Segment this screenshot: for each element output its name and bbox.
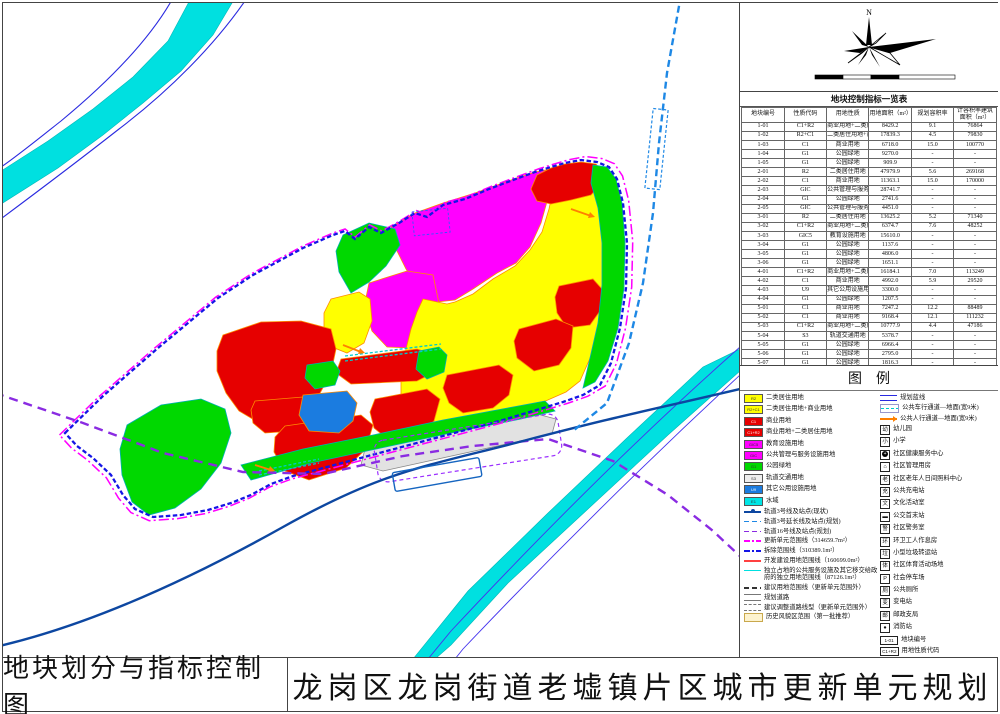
- legend-facility-icon: 厕: [880, 586, 890, 596]
- legend-item: 充公共充电站: [880, 487, 996, 497]
- legend-item-label: 建议用地范围线（更新单元范围外）: [764, 584, 880, 591]
- legend-facility-icon: ⌂: [880, 462, 890, 472]
- table-cell: 1-03: [742, 140, 784, 149]
- table-cell: 2-04: [742, 195, 784, 204]
- legend-swatch-line: [744, 557, 761, 564]
- table-row: 5-02C1商业用地9168.412.1111232: [742, 313, 996, 322]
- legend-item-label: 轨道交通用地: [766, 474, 880, 481]
- table-row: 3-03GIC5教育设施用地15610.0--: [742, 231, 996, 240]
- legend-item-label: 邮政支局: [893, 611, 996, 618]
- table-row: 1-05G1公园绿地909.9--: [742, 159, 996, 168]
- table-cell: -: [911, 150, 953, 159]
- table-cell: 商业用地+二类居住用地: [827, 268, 869, 277]
- table-cell: 3-01: [742, 213, 784, 222]
- table-header: 用地性质: [827, 108, 869, 123]
- legend-facility-icon: 环: [880, 537, 890, 547]
- table-cell: 4.4: [911, 322, 953, 331]
- table-cell: C1+R2: [784, 222, 826, 231]
- table-cell: C1+R2: [784, 322, 826, 331]
- legend-item-label: 二类居住用地+商业用地: [766, 405, 880, 412]
- map-area: [3, 3, 739, 657]
- legend-facility-icon: P: [880, 574, 890, 584]
- legend-swatch-fill: R2+C1: [744, 405, 763, 414]
- legend-facility-icon: 垃: [880, 549, 890, 559]
- table-cell: 2795.0: [869, 350, 911, 359]
- legend-item-label: 幼儿园: [893, 425, 996, 432]
- legend-swatch-line: [744, 528, 761, 535]
- table-cell: 12.2: [911, 304, 953, 313]
- table-row: 5-05G1公园绿地6966.4--: [742, 341, 996, 350]
- table-cell: 13625.2: [869, 213, 911, 222]
- table-cell: 商业用地: [827, 277, 869, 286]
- legend-item: G1公园绿地: [744, 462, 880, 471]
- legend-item: 垃小型垃圾转运站: [880, 549, 996, 559]
- table-row: 5-04S3轨道交通用地5378.7--: [742, 331, 996, 340]
- table-cell: 2-05: [742, 204, 784, 213]
- table-cell: 88489: [954, 304, 996, 313]
- legend-item-label: 社会停车场: [893, 574, 996, 581]
- legend-item-label: 社区健康服务中心: [893, 450, 996, 457]
- table-cell: G1: [784, 159, 826, 168]
- legend-item: 公共人行通道—地面(宽9米): [880, 415, 996, 422]
- legend-swatch-line: [744, 508, 761, 515]
- table-cell: 9168.4: [869, 313, 911, 322]
- legend-item: 历史风貌区范围（第一批推荐）: [744, 613, 880, 622]
- table-cell: 公园绿地: [827, 241, 869, 250]
- legend-item: 公共车行通道—地面(宽9米): [880, 404, 996, 413]
- table-cell: 5.9: [911, 277, 953, 286]
- table-cell: -: [954, 150, 996, 159]
- legend-item: 警社区警务室: [880, 524, 996, 534]
- table-cell: -: [954, 250, 996, 259]
- table-cell: 9270.0: [869, 150, 911, 159]
- table-cell: 7.6: [911, 222, 953, 231]
- legend-item: 1-01地块编号: [880, 636, 996, 645]
- table-row: 2-04G1公园绿地2741.6--: [742, 195, 996, 204]
- legend-item: 开发建设用地范围线（160699.0m²）: [744, 557, 880, 564]
- table-row: 2-02C1商业用地11363.115.0170000: [742, 177, 996, 186]
- table-row: 2-03GIC公共管理与服务设施用地28741.7--: [742, 186, 996, 195]
- table-cell: C1: [784, 177, 826, 186]
- legend-item-label: 地块编号: [901, 636, 996, 643]
- legend-item: P社会停车场: [880, 574, 996, 584]
- table-cell: 3-03: [742, 231, 784, 240]
- scale-bar-segment: [843, 75, 871, 79]
- legend-item-label: 社区管理用房: [893, 462, 996, 469]
- legend-swatch-vehicle-passage: [880, 404, 899, 413]
- legend-item: E1水域: [744, 497, 880, 506]
- indicator-table: 地块编号性质代码用地性质用地面积（m²）规划容积率计容积率建筑面积（m²） 1-…: [741, 107, 996, 366]
- legend-facility-icon: ▬: [880, 512, 890, 522]
- legend-item: +社区健康服务中心: [880, 450, 996, 460]
- table-cell: G1: [784, 295, 826, 304]
- legend-item-label: 公共车行通道—地面(宽9米): [902, 404, 996, 411]
- sheet-frame: N 地块控制指标一览表 地块编号性质代码用地性质用地面积（m²）规划容: [2, 2, 998, 712]
- table-cell: S3: [784, 331, 826, 340]
- table-cell: 100770: [954, 140, 996, 149]
- table-cell: -: [911, 186, 953, 195]
- table-cell: R2: [784, 213, 826, 222]
- table-cell: G1: [784, 350, 826, 359]
- legend-item-label: 开发建设用地范围线（160699.0m²）: [764, 557, 880, 564]
- legend-item-label: 公共充电站: [893, 487, 996, 494]
- legend-item: GIC5教育设施用地: [744, 440, 880, 449]
- table-cell: 3300.0: [869, 286, 911, 295]
- legend-item-label: 轨道3号线及站点(现状): [764, 508, 880, 515]
- legend-item: C1+R2商业用地+二类居住用地: [744, 428, 880, 437]
- legend-item: 变变电站: [880, 598, 996, 608]
- legend-item: ▬公交首末站: [880, 512, 996, 522]
- table-header: 性质代码: [784, 108, 826, 123]
- table-cell: 5-01: [742, 304, 784, 313]
- legend-item-label: 商业用地: [766, 417, 880, 424]
- table-row: 2-05GIC公共管理与服务设施用地4451.0--: [742, 204, 996, 213]
- table-cell: G1: [784, 250, 826, 259]
- compass-box: N: [740, 3, 998, 92]
- table-cell: 2741.6: [869, 195, 911, 204]
- legend-box: 图例 R2二类居住用地R2+C1二类居住用地+商业用地C1商业用地C1+R2商业…: [740, 365, 998, 657]
- table-cell: G1: [784, 195, 826, 204]
- table-row: 1-03C1商业用地6718.015.0100770: [742, 140, 996, 149]
- legend-code-box: C1+R2: [880, 647, 898, 656]
- table-cell: 1-05: [742, 159, 784, 168]
- legend-item-label: 独立占地的公共服务设施及其它移交给政府的独立用地范围线（87126.1m²）: [764, 567, 880, 582]
- north-label: N: [866, 8, 872, 17]
- legend-item-label: 用地性质代码: [902, 647, 996, 654]
- legend-item-label: 二类居住用地: [766, 394, 880, 401]
- table-row: 1-01C1+R2商业用地+二类居住用地8429.29.176864: [742, 122, 996, 131]
- table-row: 1-02R2+C1二类居住用地+商业用地17839.34.579830: [742, 131, 996, 140]
- table-cell: 6374.7: [869, 222, 911, 231]
- table-header: 用地面积（m²）: [869, 108, 911, 123]
- table-cell: 170000: [954, 177, 996, 186]
- legend-item: 邮邮政支局: [880, 611, 996, 621]
- table-cell: -: [911, 331, 953, 340]
- table-cell: 76864: [954, 122, 996, 131]
- table-cell: 5.6: [911, 168, 953, 177]
- legend-item: 体社区体育活动场地: [880, 561, 996, 571]
- plan-map: [3, 3, 739, 657]
- plan-sheet: N 地块控制指标一览表 地块编号性质代码用地性质用地面积（m²）规划容: [0, 0, 1000, 714]
- legend-item-label: 更新单元范围线（314659.7m²）: [764, 537, 880, 544]
- legend-swatch-fill: S3: [744, 474, 763, 483]
- table-cell: -: [954, 231, 996, 240]
- legend-facility-icon: ●: [880, 623, 890, 633]
- table-cell: 47979.9: [869, 168, 911, 177]
- table-cell: 公共管理与服务设施用地: [827, 186, 869, 195]
- table-cell: -: [954, 295, 996, 304]
- table-cell: -: [911, 241, 953, 250]
- table-cell: -: [911, 295, 953, 304]
- table-cell: 3-02: [742, 222, 784, 231]
- table-row: 3-01R2二类居住用地13625.25.271340: [742, 213, 996, 222]
- legend-left-column: R2二类居住用地R2+C1二类居住用地+商业用地C1商业用地C1+R2商业用地+…: [744, 394, 880, 657]
- legend-swatch-fill: C1: [744, 417, 763, 426]
- table-header: 规划容积率: [911, 108, 953, 123]
- table-cell: 269168: [954, 168, 996, 177]
- legend-item-label: 历史风貌区范围（第一批推荐）: [766, 613, 880, 620]
- legend-item-label: 消防站: [893, 623, 996, 630]
- table-cell: C1: [784, 140, 826, 149]
- table-cell: 5-05: [742, 341, 784, 350]
- legend-facility-icon: 变: [880, 598, 890, 608]
- legend-facility-icon: 充: [880, 487, 890, 497]
- legend-item: 规划蓝线: [880, 394, 996, 401]
- table-cell: 28741.7: [869, 186, 911, 195]
- legend-item: GIC公共管理与服务设施用地: [744, 451, 880, 460]
- scale-bar-segment: [871, 75, 899, 79]
- legend-swatch-line: [744, 584, 761, 591]
- legend-right-column: 规划蓝线公共车行通道—地面(宽9米)公共人行通道—地面(宽9米)幼幼儿园小小学+…: [880, 394, 996, 657]
- table-cell: R2+C1: [784, 131, 826, 140]
- table-cell: 4451.0: [869, 204, 911, 213]
- legend-item: ⌂社区管理用房: [880, 462, 996, 472]
- table-cell: U9: [784, 286, 826, 295]
- table-row: 3-02C1+R2商业用地+二类居住用地6374.77.648252: [742, 222, 996, 231]
- table-cell: 4992.0: [869, 277, 911, 286]
- table-row: 3-04G1公园绿地1137.6--: [742, 241, 996, 250]
- table-cell: 6966.4: [869, 341, 911, 350]
- table-row: 2-01R2二类居住用地47979.95.6269168: [742, 168, 996, 177]
- table-cell: 5-04: [742, 331, 784, 340]
- table-cell: -: [911, 259, 953, 268]
- north-arrow-icon: [844, 17, 936, 67]
- legend-item: R2+C1二类居住用地+商业用地: [744, 405, 880, 414]
- table-cell: 1-01: [742, 122, 784, 131]
- table-row: 4-02C1商业用地4992.05.929520: [742, 277, 996, 286]
- legend-item-label: 建议调整道路线型（更新单元范围外）: [764, 604, 880, 611]
- legend-item-label: 商业用地+二类居住用地: [766, 428, 880, 435]
- table-cell: -: [954, 241, 996, 250]
- legend-swatch-fill: GIC5: [744, 440, 763, 449]
- legend-item: C1+R2用地性质代码: [880, 647, 996, 656]
- table-cell: 6718.0: [869, 140, 911, 149]
- table-cell: C1: [784, 313, 826, 322]
- legend-item-label: 轨道3号延长线及站点(规划): [764, 518, 880, 525]
- table-cell: 71340: [954, 213, 996, 222]
- table-cell: -: [954, 195, 996, 204]
- table-cell: 商业用地: [827, 177, 869, 186]
- table-cell: 轨道交通用地: [827, 331, 869, 340]
- table-cell: -: [911, 250, 953, 259]
- table-cell: G1: [784, 259, 826, 268]
- legend-item-label: 公共厕所: [893, 586, 996, 593]
- table-cell: 48252: [954, 222, 996, 231]
- legend-swatch-fill: G1: [744, 462, 763, 471]
- table-cell: 1-02: [742, 131, 784, 140]
- table-cell: -: [954, 331, 996, 340]
- table-cell: 29520: [954, 277, 996, 286]
- table-cell: 5-06: [742, 350, 784, 359]
- table-cell: 公园绿地: [827, 341, 869, 350]
- table-cell: 4-02: [742, 277, 784, 286]
- legend-item: R2二类居住用地: [744, 394, 880, 403]
- table-cell: C1: [784, 277, 826, 286]
- table-cell: 商业用地: [827, 140, 869, 149]
- table-cell: -: [954, 204, 996, 213]
- legend-item: 轨道16号线及站点(规划): [744, 528, 880, 535]
- table-cell: 2-01: [742, 168, 784, 177]
- legend-item: 环环卫工人作息房: [880, 537, 996, 547]
- legend-item: 厕公共厕所: [880, 586, 996, 596]
- table-cell: -: [911, 350, 953, 359]
- legend-item: C1商业用地: [744, 417, 880, 426]
- table-cell: 5-03: [742, 322, 784, 331]
- legend-swatch-line: [744, 567, 761, 574]
- table-cell: 公园绿地: [827, 259, 869, 268]
- table-cell: 3-06: [742, 259, 784, 268]
- legend-swatch-fill: C1+R2: [744, 428, 763, 437]
- legend-item-label: 公共人行通道—地面(宽9米): [900, 415, 996, 422]
- legend-item-label: 教育设施用地: [766, 440, 880, 447]
- table-cell: 15.0: [911, 140, 953, 149]
- table-cell: -: [911, 159, 953, 168]
- indicator-table-box: 地块控制指标一览表 地块编号性质代码用地性质用地面积（m²）规划容积率计容积率建…: [740, 91, 998, 366]
- legend-swatch-blueline: [880, 394, 897, 401]
- table-cell: 1651.1: [869, 259, 911, 268]
- table-cell: 公园绿地: [827, 159, 869, 168]
- table-cell: 113249: [954, 268, 996, 277]
- table-cell: 4-01: [742, 268, 784, 277]
- table-cell: 二类居住用地: [827, 213, 869, 222]
- table-cell: 17839.3: [869, 131, 911, 140]
- legend-item: 幼幼儿园: [880, 425, 996, 435]
- legend-swatch-fill: GIC: [744, 451, 763, 460]
- legend-item: 独立占地的公共服务设施及其它移交给政府的独立用地范围线（87126.1m²）: [744, 567, 880, 582]
- table-cell: 9.1: [911, 122, 953, 131]
- table-cell: 8429.2: [869, 122, 911, 131]
- table-cell: 2-02: [742, 177, 784, 186]
- table-cell: -: [954, 259, 996, 268]
- legend-swatch-fill: R2: [744, 394, 763, 403]
- legend-swatch-line: [744, 547, 761, 554]
- table-cell: 公园绿地: [827, 295, 869, 304]
- table-cell: -: [954, 186, 996, 195]
- scale-bar-segment: [815, 75, 843, 79]
- table-cell: 1-04: [742, 150, 784, 159]
- title-block: 地块划分与指标控制图 龙岗区龙岗街道老墟镇片区城市更新单元规划: [3, 657, 997, 712]
- table-cell: 教育设施用地: [827, 231, 869, 240]
- table-cell: 47186: [954, 322, 996, 331]
- table-row: 4-01C1+R2商业用地+二类居住用地16184.17.0113249: [742, 268, 996, 277]
- table-cell: 4-03: [742, 286, 784, 295]
- table-cell: 7247.2: [869, 304, 911, 313]
- legend-item-label: 水域: [766, 497, 880, 504]
- legend-health-center-icon: +: [880, 450, 890, 460]
- table-cell: C1+R2: [784, 122, 826, 131]
- table-cell: 二类居住用地: [827, 168, 869, 177]
- table-cell: -: [911, 341, 953, 350]
- table-cell: 二类居住用地+商业用地: [827, 131, 869, 140]
- table-cell: 公园绿地: [827, 250, 869, 259]
- legend-item: 老社区老年人日间照料中心: [880, 475, 996, 485]
- legend-item-label: 拆除范围线（310389.1m²）: [764, 547, 880, 554]
- legend-swatch-fill: U9: [744, 485, 763, 494]
- table-cell: 1207.5: [869, 295, 911, 304]
- legend-swatch-line: [744, 537, 761, 544]
- table-cell: 4806.0: [869, 250, 911, 259]
- table-cell: 16184.1: [869, 268, 911, 277]
- table-cell: 公园绿地: [827, 150, 869, 159]
- table-cell: 15610.0: [869, 231, 911, 240]
- compass-scalebar: N: [740, 3, 998, 91]
- table-cell: GIC: [784, 204, 826, 213]
- right-panel: N 地块控制指标一览表 地块编号性质代码用地性质用地面积（m²）规划容: [739, 3, 998, 657]
- table-cell: G1: [784, 241, 826, 250]
- legend-item-label: 小型垃圾转运站: [893, 549, 996, 556]
- table-cell: 公园绿地: [827, 350, 869, 359]
- table-cell: 1137.6: [869, 241, 911, 250]
- legend-swatch-fill: E1: [744, 497, 763, 506]
- table-cell: -: [954, 159, 996, 168]
- legend-facility-icon: 文: [880, 499, 890, 509]
- legend-item: U9其它公用设施用地: [744, 485, 880, 494]
- table-row: 5-06G1公园绿地2795.0--: [742, 350, 996, 359]
- table-cell: 公园绿地: [827, 195, 869, 204]
- table-cell: 其它公用设施用地: [827, 286, 869, 295]
- legend-item-label: 公交首末站: [893, 512, 996, 519]
- legend-item-label: 小学: [893, 437, 996, 444]
- legend-facility-icon: 体: [880, 561, 890, 571]
- legend-item-label: 社区警务室: [893, 524, 996, 531]
- table-cell: 3-05: [742, 250, 784, 259]
- table-cell: 4.5: [911, 131, 953, 140]
- table-title: 地块控制指标一览表: [740, 91, 998, 107]
- legend-historic-area-swatch: [744, 613, 763, 622]
- table-cell: 11363.1: [869, 177, 911, 186]
- legend-item: 建议用地范围线（更新单元范围外）: [744, 584, 880, 591]
- table-row: 4-03U9其它公用设施用地3300.0--: [742, 286, 996, 295]
- legend-code-box: 1-01: [880, 636, 898, 645]
- table-cell: 15.0: [911, 177, 953, 186]
- table-cell: 商业用地+二类居住用地: [827, 322, 869, 331]
- table-row: 4-04G1公园绿地1207.5--: [742, 295, 996, 304]
- table-cell: 2-03: [742, 186, 784, 195]
- table-cell: 5378.7: [869, 331, 911, 340]
- table-cell: -: [911, 286, 953, 295]
- legend-item-label: 公共管理与服务设施用地: [766, 451, 880, 458]
- drawing-name: 地块划分与指标控制图: [3, 658, 288, 712]
- table-row: 5-01C1商业用地7247.212.288489: [742, 304, 996, 313]
- legend-facility-icon: 小: [880, 437, 890, 447]
- legend-road-symbol: [744, 604, 761, 611]
- legend-item: 轨道3号线及站点(现状): [744, 508, 880, 515]
- legend-facility-icon: 警: [880, 524, 890, 534]
- table-cell: 5.2: [911, 213, 953, 222]
- table-cell: C1: [784, 304, 826, 313]
- table-cell: C1+R2: [784, 268, 826, 277]
- table-header: 地块编号: [742, 108, 784, 123]
- legend-item: 建议调整道路线型（更新单元范围外）: [744, 604, 880, 611]
- table-cell: 79830: [954, 131, 996, 140]
- legend-item-label: 环卫工人作息房: [893, 537, 996, 544]
- table-cell: -: [911, 204, 953, 213]
- legend-swatch-line: [744, 518, 761, 525]
- table-header: 计容积率建筑面积（m²）: [954, 108, 996, 123]
- table-cell: 3-04: [742, 241, 784, 250]
- legend-facility-icon: 邮: [880, 611, 890, 621]
- table-cell: 7.0: [911, 268, 953, 277]
- legend-item-label: 规划道路: [764, 594, 880, 601]
- table-cell: R2: [784, 168, 826, 177]
- table-cell: -: [954, 341, 996, 350]
- table-row: 3-06G1公园绿地1651.1--: [742, 259, 996, 268]
- legend-item: 规划道路: [744, 594, 880, 601]
- table-cell: GIC: [784, 186, 826, 195]
- table-cell: 111232: [954, 313, 996, 322]
- table-cell: 5-02: [742, 313, 784, 322]
- legend-item-label: 其它公用设施用地: [766, 485, 880, 492]
